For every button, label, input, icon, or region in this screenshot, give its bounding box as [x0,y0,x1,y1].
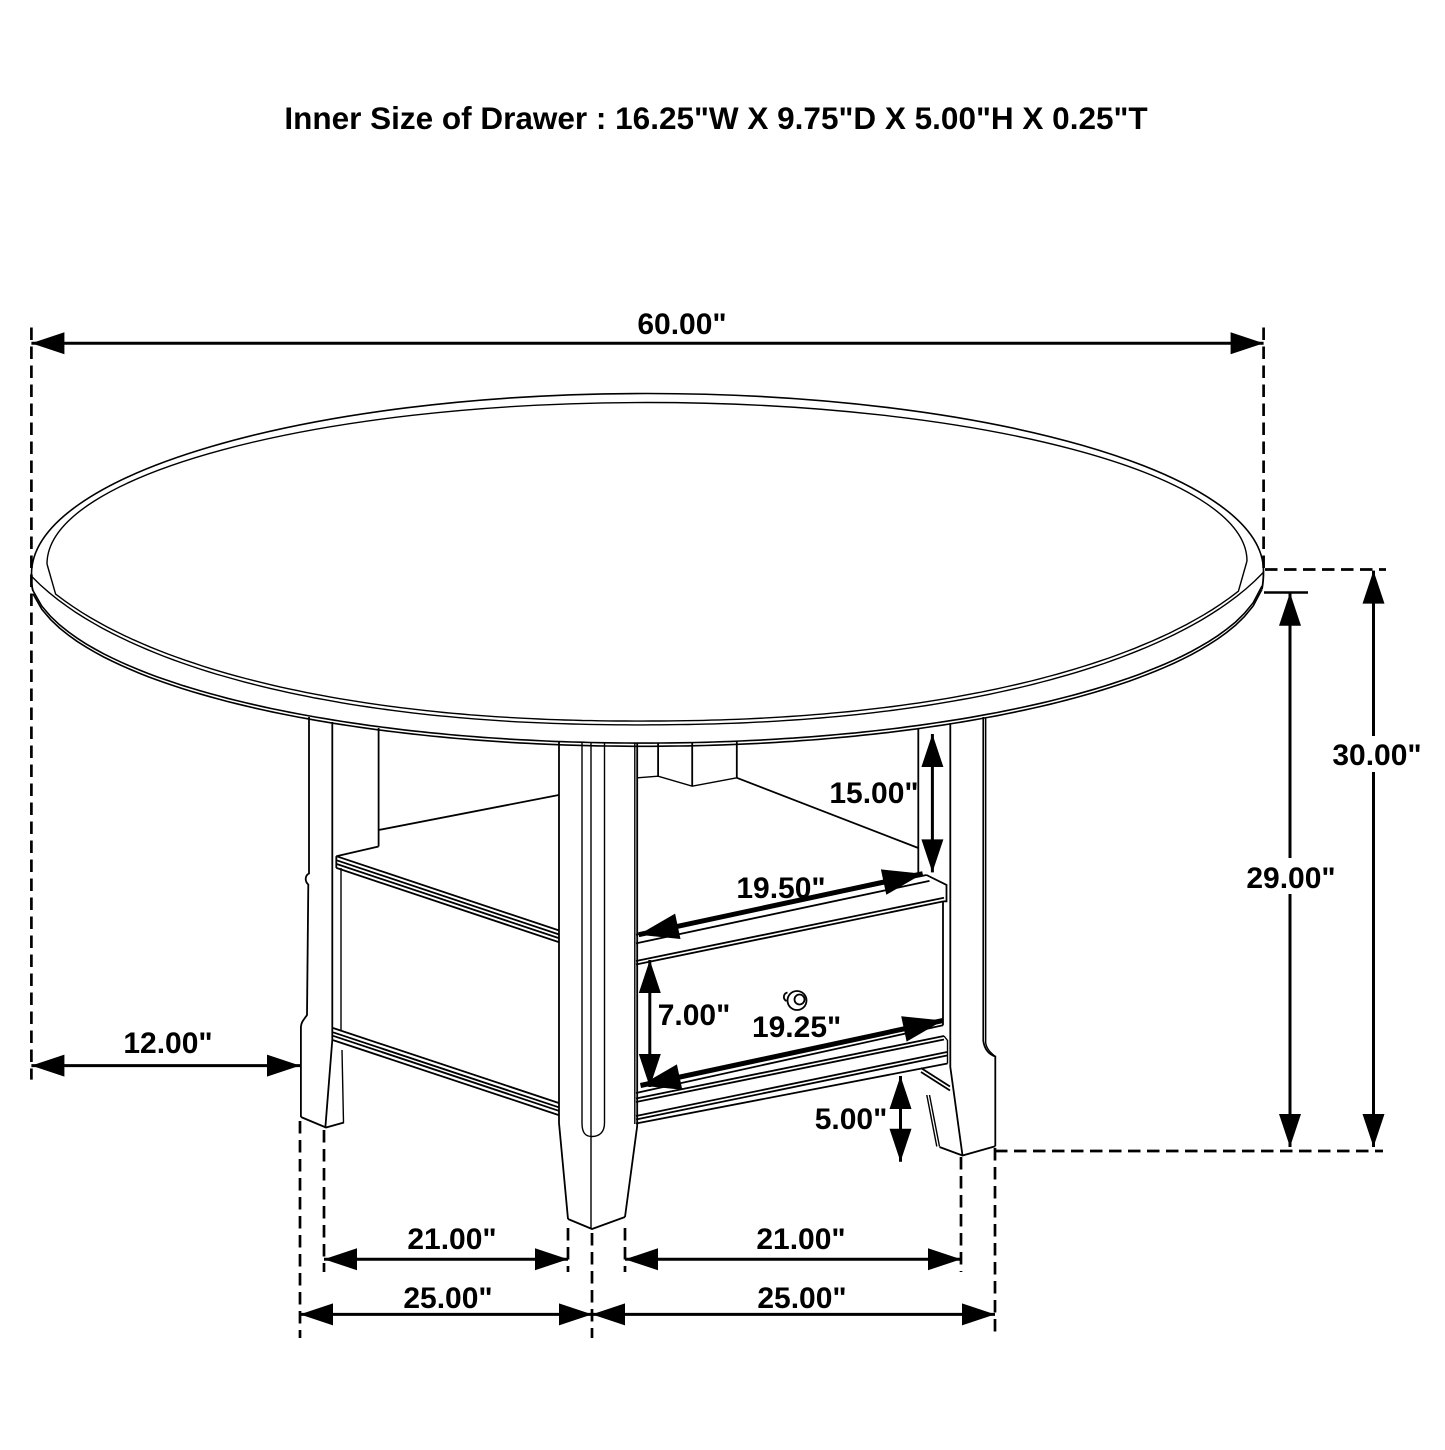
svg-text:19.25": 19.25" [752,1011,841,1044]
svg-text:Inner Size of Drawer : 16.25"W: Inner Size of Drawer : 16.25"W X 9.75"D … [284,100,1147,136]
svg-text:21.00": 21.00" [407,1223,496,1256]
svg-text:21.00": 21.00" [756,1223,845,1256]
svg-text:12.00": 12.00" [123,1027,212,1060]
svg-text:29.00": 29.00" [1246,862,1335,895]
svg-text:7.00": 7.00" [658,999,731,1032]
svg-text:19.50": 19.50" [736,872,825,905]
svg-text:25.00": 25.00" [757,1282,846,1315]
svg-text:5.00": 5.00" [815,1103,888,1136]
svg-text:60.00": 60.00" [637,308,726,341]
svg-text:25.00": 25.00" [403,1282,492,1315]
svg-text:30.00": 30.00" [1332,739,1421,772]
svg-text:15.00": 15.00" [829,777,918,810]
